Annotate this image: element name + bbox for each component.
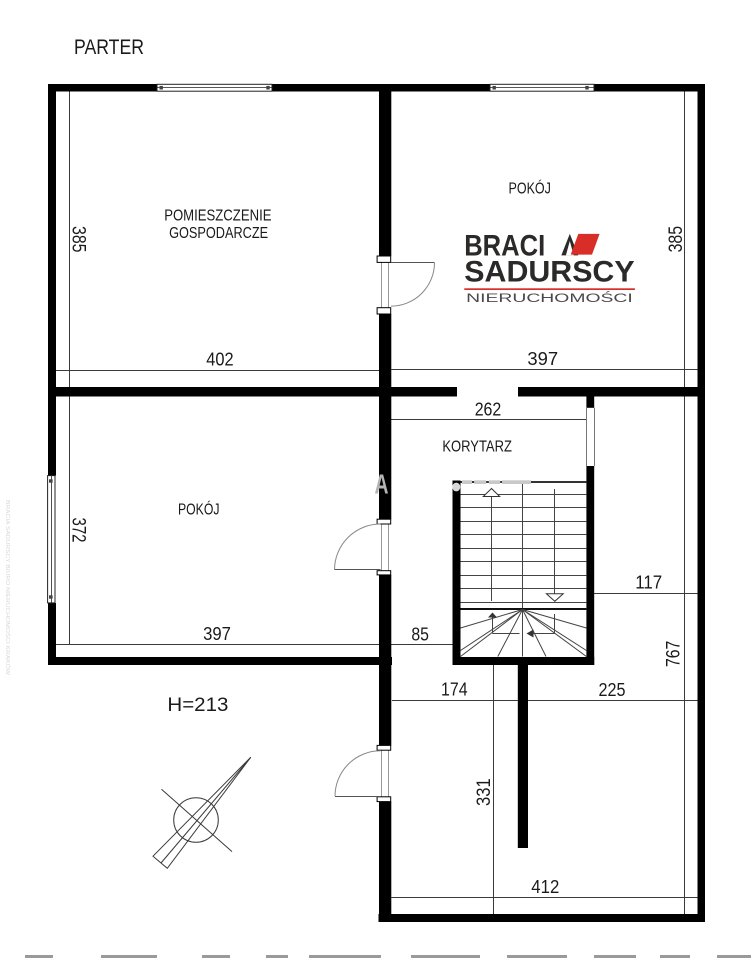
svg-text:GOSPODARCZE: GOSPODARCZE bbox=[169, 225, 268, 242]
svg-text:POKÓJ: POKÓJ bbox=[509, 180, 551, 197]
svg-text:174: 174 bbox=[441, 679, 468, 699]
svg-text:331: 331 bbox=[474, 778, 495, 806]
svg-text:385: 385 bbox=[666, 226, 687, 253]
svg-text:397: 397 bbox=[527, 349, 558, 369]
svg-text:H=213: H=213 bbox=[167, 694, 228, 716]
svg-text:262: 262 bbox=[475, 400, 502, 420]
svg-text:SADURSCY: SADURSCY bbox=[464, 255, 634, 288]
svg-text:A: A bbox=[375, 469, 389, 500]
svg-text:KORYTARZ: KORYTARZ bbox=[442, 439, 512, 456]
svg-text:85: 85 bbox=[411, 624, 429, 644]
svg-text:117: 117 bbox=[635, 573, 662, 593]
svg-text:NIERUCHOMOŚCI: NIERUCHOMOŚCI bbox=[466, 292, 633, 305]
svg-text:412: 412 bbox=[531, 877, 559, 897]
svg-text:402: 402 bbox=[206, 350, 233, 370]
svg-text:385: 385 bbox=[68, 226, 89, 253]
svg-text:767: 767 bbox=[664, 641, 685, 667]
svg-text:PARTER: PARTER bbox=[74, 35, 144, 59]
svg-text:POKÓJ: POKÓJ bbox=[178, 502, 220, 519]
svg-text:BRACIA SADURSCY BIURO NIERUCHO: BRACIA SADURSCY BIURO NIERUCHOMOŚCI KRAK… bbox=[4, 500, 12, 676]
svg-text:372: 372 bbox=[68, 518, 89, 543]
svg-text:225: 225 bbox=[599, 680, 626, 700]
svg-text:POMIESZCZENIE: POMIESZCZENIE bbox=[164, 208, 271, 225]
svg-text:397: 397 bbox=[203, 624, 231, 644]
